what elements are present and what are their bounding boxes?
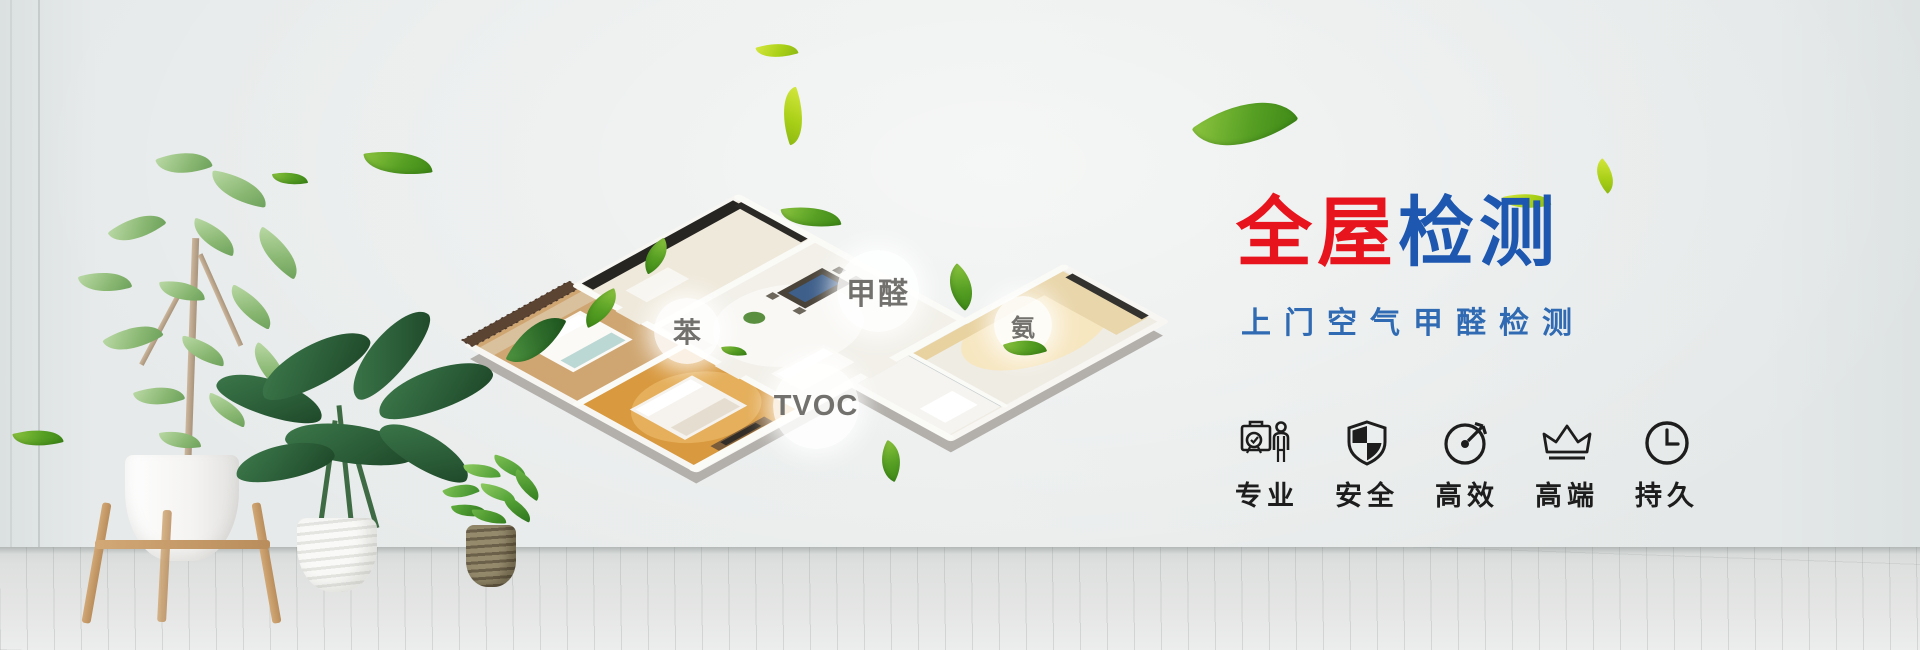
page-subtitle: 上门空气甲醛检测 (1241, 298, 1585, 342)
pollutant-label: 氨 (1011, 308, 1035, 343)
shield-icon (1345, 418, 1389, 466)
feature-label: 专业 (1235, 474, 1299, 513)
clock-icon (1644, 418, 1690, 466)
small-potted-plant (436, 455, 546, 590)
feature-label: 持久 (1635, 474, 1699, 513)
feature-item-safe: 安全 (1317, 418, 1417, 513)
title-part-red: 全屋 (1236, 191, 1398, 276)
bronze-ribbed-pot (466, 525, 516, 587)
feature-list: 专业 安全 高效 高端 (1217, 418, 1717, 513)
feature-label: 高端 (1535, 474, 1599, 513)
page-title: 全屋检测 (1236, 196, 1560, 272)
pollutant-label: TVOC (774, 390, 859, 423)
feature-item-professional: 专业 (1217, 418, 1317, 513)
planter-stand-leg (81, 502, 111, 624)
feature-item-highend: 高端 (1517, 418, 1617, 513)
feature-label: 安全 (1335, 474, 1399, 513)
feature-item-efficient: 高效 (1417, 418, 1517, 513)
pollutant-bubble-tvoc: TVOC (773, 363, 859, 449)
pollutant-bubble-formaldehyde: 甲醛 (837, 250, 919, 332)
pollutant-bubble-benzene: 苯 (654, 298, 720, 364)
crown-icon (1541, 418, 1593, 466)
gauge-icon (1442, 418, 1492, 466)
pollutant-label: 苯 (673, 311, 701, 351)
certificate-person-icon (1240, 418, 1294, 466)
feature-label: 高效 (1435, 474, 1499, 513)
white-ribbed-pot (297, 518, 377, 592)
banner-root: { "banner": { "title_part1": "全屋", "titl… (0, 0, 1920, 650)
pollutant-label: 甲醛 (846, 269, 910, 313)
feature-item-lasting: 持久 (1617, 418, 1717, 513)
title-part-blue: 检测 (1398, 191, 1560, 276)
